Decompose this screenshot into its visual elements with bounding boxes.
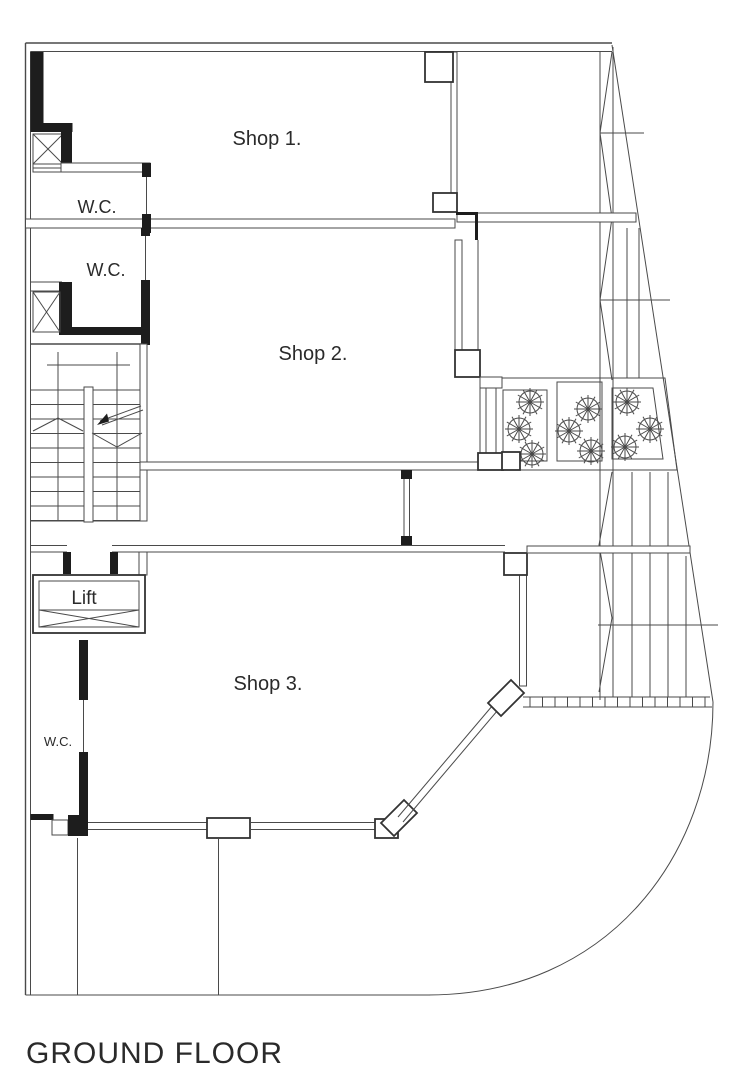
floor-plan-page: Shop 1. Shop 2. Shop 3. W.C. W.C. W.C. L… [0,0,737,1080]
court-wall [457,213,636,222]
wc3-label: W.C. [44,734,72,749]
wc1-label: W.C. [78,197,117,217]
wc2-walls [31,228,151,345]
entrance-pier [425,52,453,82]
stair-divider [84,387,93,522]
drawing-title: GROUND FLOOR [26,1037,283,1070]
ramp-zigzag-lower [599,472,612,692]
corner-post [488,680,524,716]
paving-tick-band [523,697,712,707]
wc2-label: W.C. [87,260,126,280]
shop1-label: Shop 1. [233,128,302,150]
shop3-label: Shop 3. [234,673,303,695]
plot-boundary [26,43,714,995]
walkway-wall [527,546,690,553]
shop2-label: Shop 2. [279,343,348,365]
lift-label: Lift [71,588,97,609]
staircase [31,344,148,522]
storefront [78,452,528,995]
storefront-mullion [207,818,250,838]
shop2-south-wall [140,462,503,470]
side-walkway [523,47,718,707]
floor-plan-drawing: Shop 1. Shop 2. Shop 3. W.C. W.C. W.C. L… [0,0,737,1080]
shop3-east-wall [520,575,527,686]
shop2-east-walls [433,193,503,470]
corridor-walls [31,462,506,575]
